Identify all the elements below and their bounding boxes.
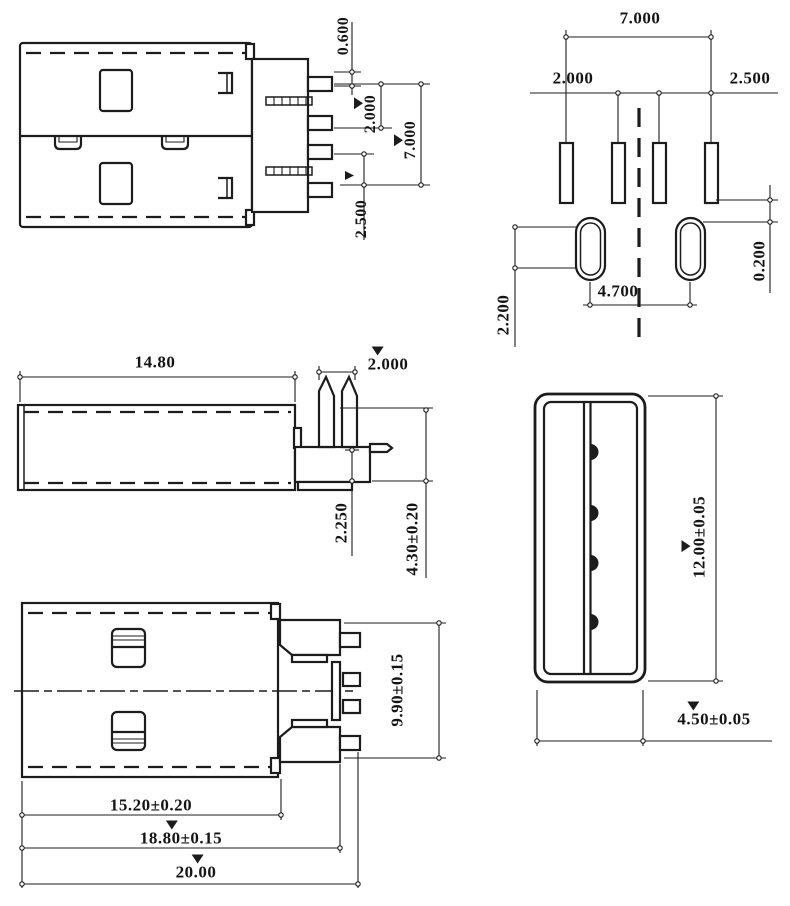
depth-symbol-icon bbox=[354, 97, 363, 109]
dim-label-face-height: 4.50±0.05 bbox=[677, 711, 750, 728]
solder-claw bbox=[319, 377, 334, 447]
dim-label-claw-width: 2.000 bbox=[368, 356, 409, 373]
plug-side-view bbox=[20, 43, 332, 227]
dim-label-block-width: 9.90±0.15 bbox=[389, 653, 406, 726]
usb-connector-technical-drawing: 0.600 2.000 7.000 2.500 7.000 2.000 2.50… bbox=[0, 0, 790, 906]
depth-symbol-icon bbox=[682, 540, 691, 552]
latch-spring bbox=[112, 712, 145, 750]
footprint-view bbox=[560, 108, 718, 348]
datum-symbol-icon bbox=[345, 171, 354, 180]
plug-top-view bbox=[14, 603, 360, 777]
center-tongue bbox=[332, 662, 340, 720]
dim-label-pad-pitch-a: 2.000 bbox=[553, 70, 594, 87]
dim-label-pin-pitch: 2.000 bbox=[363, 95, 379, 134]
dim-label-overall-length: 18.80±0.15 bbox=[140, 830, 222, 847]
solder-claw bbox=[342, 377, 357, 447]
depth-symbol-icon bbox=[687, 702, 699, 711]
dim-label-pin-pitch-b: 2.500 bbox=[354, 200, 370, 239]
side-pin bbox=[370, 444, 392, 452]
front-face-view bbox=[535, 394, 645, 682]
mount-block bbox=[280, 727, 340, 762]
depth-symbol-icon bbox=[394, 134, 403, 146]
plug-pins bbox=[308, 77, 332, 197]
depth-symbol-icon bbox=[372, 347, 384, 356]
dim-label-hole-span: 4.700 bbox=[598, 283, 639, 300]
dim-label-shell-length: 15.20±0.20 bbox=[110, 797, 192, 814]
dim-label-face-width: 12.00±0.05 bbox=[691, 496, 708, 578]
dim-label-pin-tip: 0.600 bbox=[336, 17, 352, 56]
dim-label-body-length: 14.80 bbox=[135, 354, 176, 371]
dim-label-pad-span: 7.000 bbox=[620, 10, 661, 27]
dim-label-pad-pitch-b: 2.500 bbox=[730, 70, 771, 87]
dim-label-hole-length: 2.200 bbox=[495, 295, 512, 336]
dim-label-total-length: 20.00 bbox=[176, 864, 217, 881]
shell-side-view bbox=[18, 377, 392, 490]
plug-rear-block bbox=[252, 59, 308, 212]
depth-symbol-icon bbox=[192, 855, 204, 864]
latch-spring bbox=[112, 629, 145, 667]
mount-block bbox=[280, 620, 340, 655]
shell-window-hole bbox=[100, 163, 132, 204]
dim-label-pin-span: 7.000 bbox=[403, 121, 419, 160]
depth-symbol-icon bbox=[166, 821, 178, 830]
base-block bbox=[295, 447, 370, 482]
dim-label-pad-offset: 0.200 bbox=[751, 241, 768, 282]
dim-label-mount-height: 4.30±0.20 bbox=[404, 502, 421, 575]
shell-window-hole bbox=[100, 70, 132, 111]
dim-label-leg-height: 2.250 bbox=[333, 503, 350, 544]
